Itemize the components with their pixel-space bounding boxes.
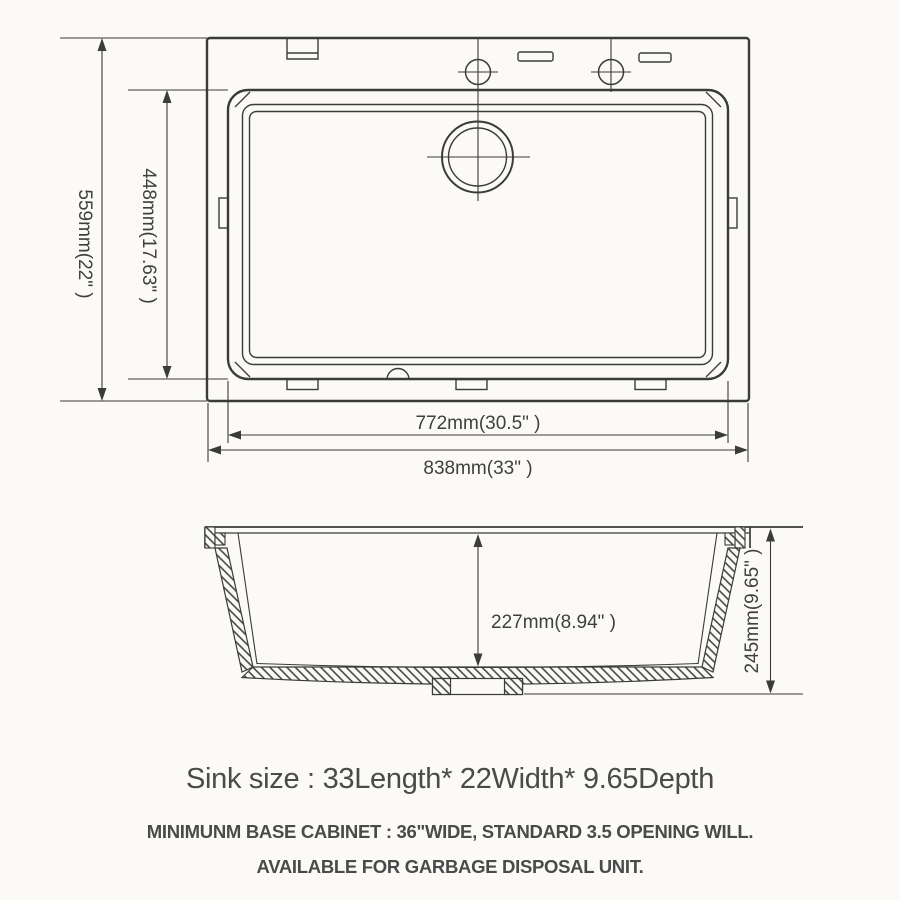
mounting-clip-left [219,198,228,228]
wall-left-section [215,548,253,672]
top-view [207,38,749,401]
wall-right-section [702,548,740,672]
accessory-slot-right [639,53,671,62]
top-view-dimensions [60,38,748,462]
accessory-slot-left [518,52,553,61]
mounting-tab-top [287,39,318,59]
label-outer-width: 838mm(33" ) [423,458,532,479]
label-outer-depth: 245mm(9.65" ) [742,548,763,673]
mounting-tabs-bottom [287,380,666,390]
drain-boss [433,679,523,695]
label-inner-depth: 227mm(8.94" ) [491,612,616,633]
sink-size-caption: Sink size : 33Length* 22Width* 9.65Depth [0,763,900,796]
sink-dimension-diagram: 559mm(22" ) 448mm(17.63" ) 772mm(30.5" )… [0,0,900,900]
mounting-clip-right [728,198,737,228]
label-inner-height: 448mm(17.63" ) [138,168,159,304]
label-outer-height: 559mm(22" ) [74,189,95,298]
base-cabinet-caption: MINIMUNM BASE CABINET : 36"WIDE, STANDAR… [0,821,900,843]
dim-inner-depth [474,534,483,667]
rim-lip-left [205,527,225,548]
side-view [205,527,803,695]
garbage-disposal-caption: AVAILABLE FOR GARBAGE DISPOSAL UNIT. [0,856,900,878]
label-inner-width: 772mm(30.5" ) [415,413,540,434]
rim-lip-right [725,527,745,548]
